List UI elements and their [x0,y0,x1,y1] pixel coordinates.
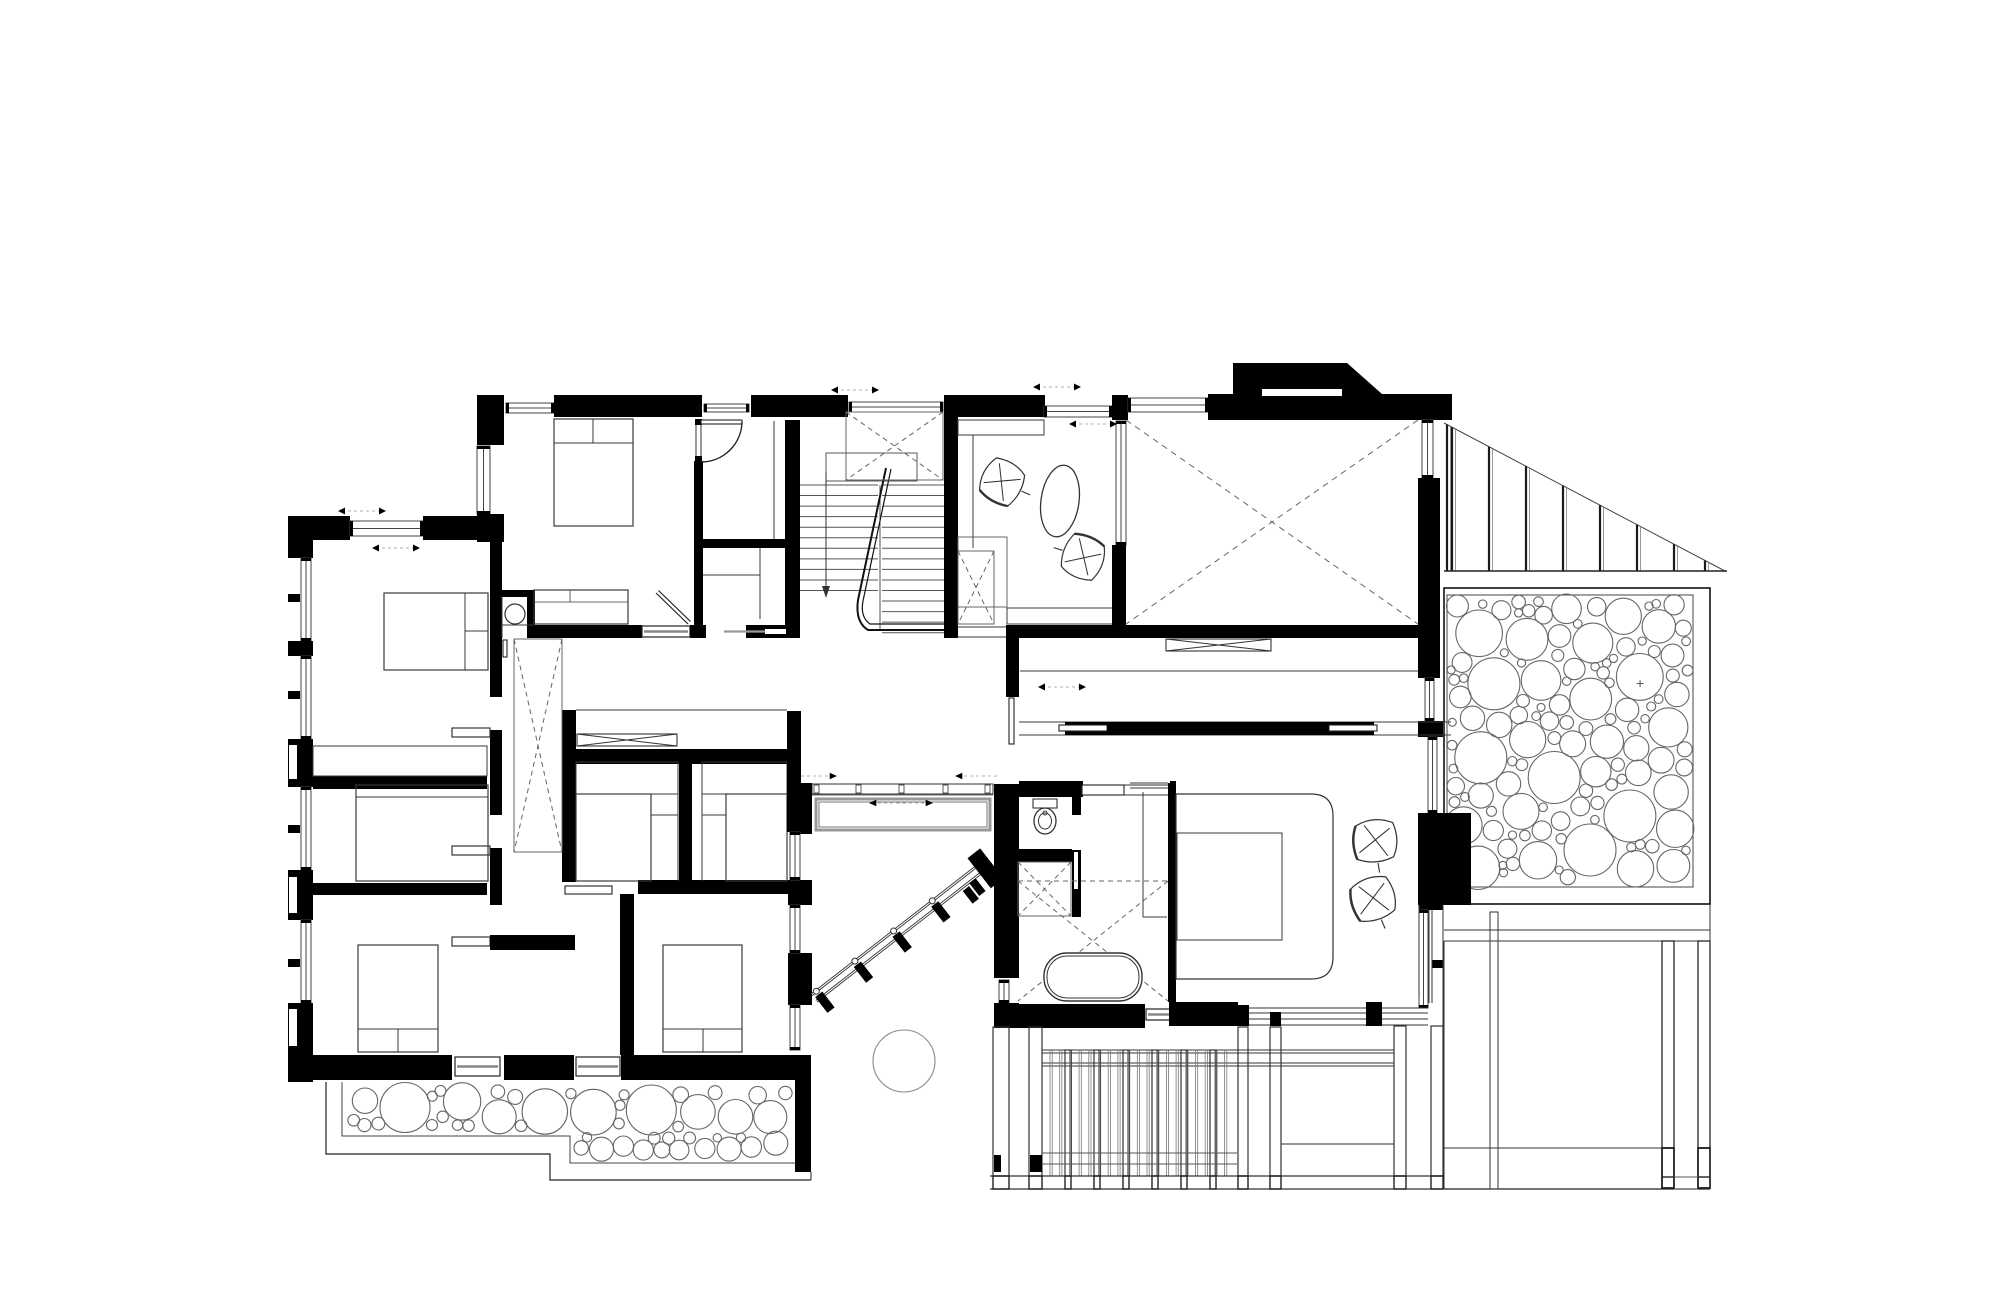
svg-text:+: + [1636,675,1644,691]
